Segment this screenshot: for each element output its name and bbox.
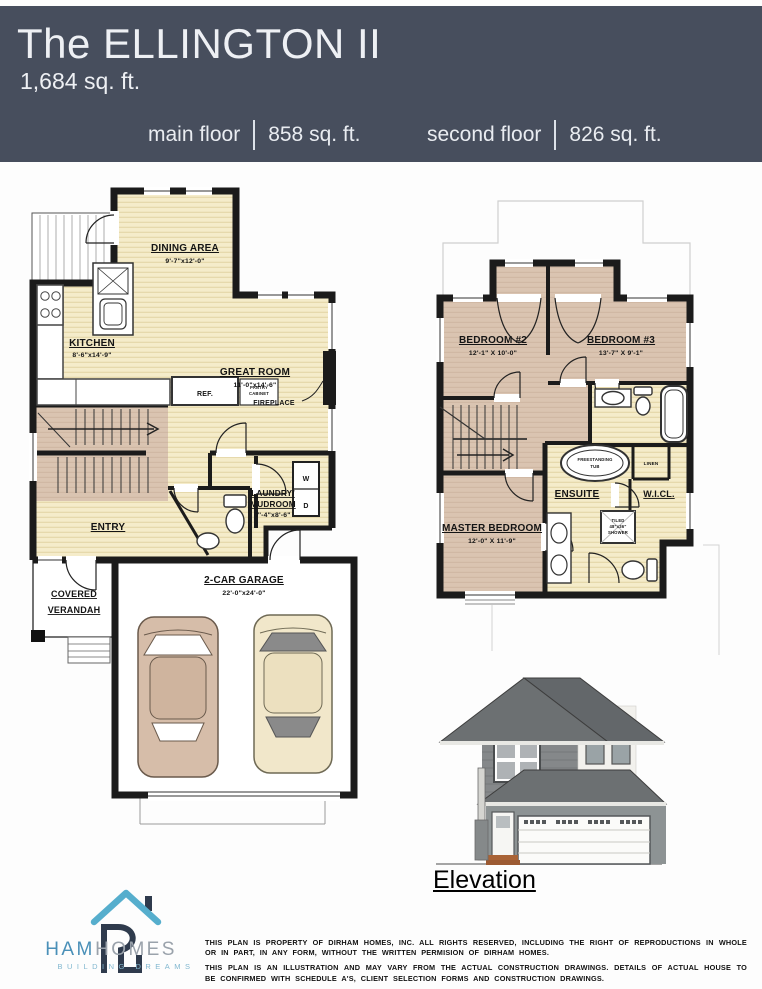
brand-logo: DIRHAM HOMES BUILDING DREAMS: [42, 882, 212, 979]
garage-storey: [486, 806, 666, 865]
garage-label: 2-CAR GARAGE: [204, 575, 284, 586]
laundry-label-1: LAUNDRY/: [251, 489, 295, 498]
tub-label-2: TUB: [590, 464, 599, 469]
verandah-label-1: COVERED: [51, 589, 97, 599]
car: [138, 617, 218, 777]
ensuite-label: ENSUITE: [555, 489, 600, 500]
fireplace-label: FIREPLACE: [253, 400, 295, 407]
entry-label: ENTRY: [91, 522, 126, 533]
master-bedroom-label: MASTER BEDROOM: [442, 523, 542, 534]
laundry-dims: 7'-4"x8'-6": [255, 512, 290, 519]
divider: [253, 120, 255, 150]
dryer-label: D: [303, 503, 308, 510]
divider: [554, 120, 556, 150]
main-floor-plan: W D DINING AREA 9'-7"x12'-0" KITCHEN 8'-…: [18, 183, 366, 831]
pantry-label-1: PANTRY: [250, 385, 268, 390]
great-room-label: GREAT ROOM: [220, 367, 290, 378]
brand-name-primary: DIRHAM: [42, 939, 95, 960]
fireplace-block: [323, 351, 336, 405]
bedroom2-dims: 12'-1" X 10'-0": [469, 350, 517, 357]
kitchen-dims: 8'-6"x14'-9": [72, 352, 111, 359]
legal-paragraph-2: THIS PLAN IS AN ILLUSTRATION AND MAY VAR…: [205, 963, 747, 983]
second-floor-area: 826 sq. ft.: [569, 123, 661, 147]
page-subtitle: 1,684 sq. ft.: [20, 68, 140, 95]
washer-dryer: W D: [293, 462, 319, 516]
second-floor-stat: second floor 826 sq. ft.: [427, 120, 662, 150]
brand-tagline: BUILDING DREAMS: [57, 962, 194, 971]
pantry-label-2: CABINET: [249, 391, 269, 396]
garage-fascia: [478, 802, 666, 806]
main-floor-stat: main floor 858 sq. ft.: [148, 120, 360, 150]
linen-label: LINEN: [644, 461, 659, 466]
car: [254, 615, 332, 773]
second-floor-plan: BEDROOM #2 12'-1" X 10'-0" BEDROOM #3 13…: [405, 193, 735, 658]
legal-paragraph-1: THIS PLAN IS PROPERTY OF DIRHAM HOMES, I…: [205, 938, 747, 958]
master-bedroom-dims: 12'-0" X 11'-9": [468, 538, 516, 545]
header: The ELLINGTON II 1,684 sq. ft. main floo…: [0, 6, 762, 162]
shower-label-1: TILED: [611, 518, 624, 523]
fridge-label: REF.: [197, 391, 213, 398]
shower-label-3: SHOWER: [608, 530, 628, 535]
washer-label: W: [303, 476, 310, 483]
kitchen-island: [93, 263, 133, 335]
bedroom3-dims: 13'-7" X 9'-1": [599, 350, 643, 357]
kitchen-label: KITCHEN: [69, 338, 115, 349]
second-floor-label: second floor: [427, 123, 541, 147]
dining-dims: 9'-7"x12'-0": [165, 258, 204, 265]
tub-label-1: FREESTANDING: [577, 457, 612, 462]
wicl-label: W.I.CL.: [643, 489, 674, 499]
bedroom2-label: BEDROOM #2: [459, 335, 527, 346]
main-floor-area: 858 sq. ft.: [268, 123, 360, 147]
elevation-label: Elevation: [433, 866, 536, 895]
laundry-label-2: MUDROOM: [250, 500, 296, 509]
legal-text: THIS PLAN IS PROPERTY OF DIRHAM HOMES, I…: [205, 938, 747, 989]
garage-dims: 22'-0"x24'-0": [222, 590, 265, 597]
verandah-label-2: VERANDAH: [48, 605, 101, 615]
shower-label-2: 48"x36": [609, 524, 626, 529]
page-title: The ELLINGTON II: [17, 20, 381, 68]
main-floor-label: main floor: [148, 123, 240, 147]
brand-name-secondary: HOMES: [95, 939, 177, 960]
bedroom3-label: BEDROOM #3: [587, 335, 655, 346]
dining-label: DINING AREA: [151, 243, 219, 254]
elevation-drawing: [428, 662, 668, 870]
